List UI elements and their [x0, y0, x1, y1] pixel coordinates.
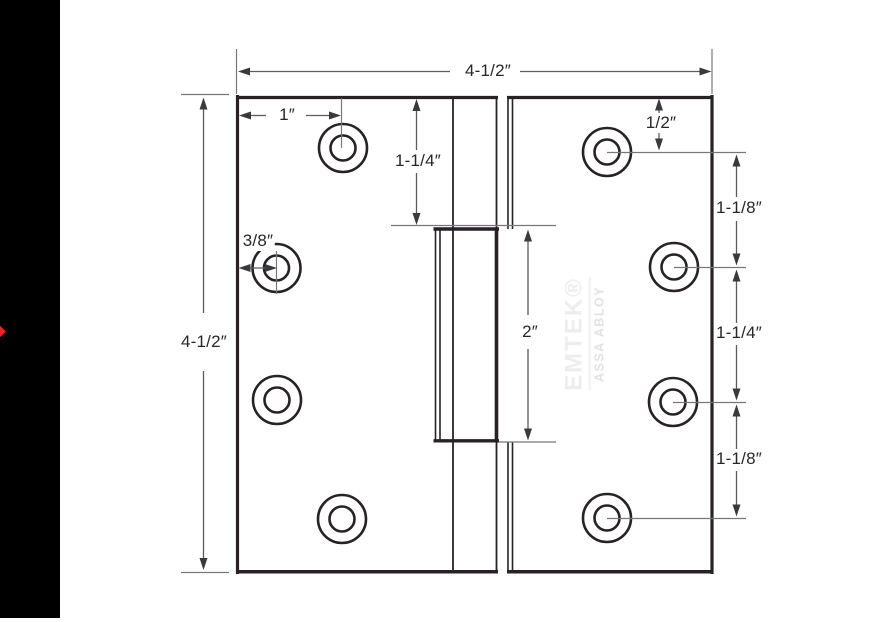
hole-outer-ring: [318, 495, 366, 543]
arrow-height-up: [200, 98, 208, 110]
arrow-height-down: [200, 558, 208, 570]
screw-holes: [253, 124, 699, 543]
dim-label-right-gap-1: 1-1/8″: [714, 198, 764, 218]
hole-inner-ring: [331, 136, 356, 161]
hole-outer-ring: [253, 376, 301, 424]
dim-label-barrel-length: 2″: [520, 322, 540, 342]
arrow-half-up: [655, 99, 663, 111]
dim-label-hole-offset-top: 1″: [277, 105, 297, 125]
arrow-gap3-up: [733, 405, 741, 417]
hole-inner-ring: [265, 388, 290, 413]
hole-outer-ring: [319, 124, 367, 172]
dim-label-right-gap-3: 1-1/8″: [714, 449, 764, 469]
dimension-lines: [204, 72, 737, 560]
arrow-38-right: [265, 264, 277, 272]
arrow-half-down: [655, 139, 663, 151]
hole-inner-ring: [330, 507, 355, 532]
arrow-gap1-up: [733, 155, 741, 167]
dim-label-overall-height: 4-1/2″: [179, 332, 229, 352]
hinge-barrel: [434, 96, 500, 571]
screw-hole-left-1: [319, 124, 367, 172]
arrow-gap1-down: [733, 254, 741, 266]
arrow-1in-right: [329, 112, 341, 120]
screw-hole-left-3: [253, 376, 301, 424]
screw-hole-left-4: [318, 495, 366, 543]
dim-label-right-top-to-hole: 1/2″: [644, 113, 678, 133]
dim-label-edge-to-hole: 3/8″: [241, 231, 275, 251]
arrow-114-down: [413, 213, 421, 225]
arrow-1in-left: [239, 112, 251, 120]
arrow-gap2-down: [733, 389, 741, 401]
arrow-width-right: [700, 68, 712, 76]
arrow-114-up: [413, 99, 421, 111]
arrow-2in-down: [524, 429, 532, 441]
dimension-arrowheads: [200, 68, 741, 571]
dim-label-plate-top-to-barrel: 1-1/4″: [393, 151, 443, 171]
left-leaf-outline: [236, 95, 498, 574]
arrow-2in-up: [524, 230, 532, 242]
arrow-gap2-up: [733, 270, 741, 282]
hinge-line-drawing: [0, 0, 888, 622]
hinge-diagram-canvas: EMTEK® ASSA ABLOY: [0, 0, 888, 622]
arrow-gap3-down: [733, 505, 741, 517]
arrow-38-left: [239, 264, 251, 272]
arrow-width-left: [238, 68, 250, 76]
dim-label-overall-width: 4-1/2″: [463, 61, 513, 81]
dim-label-right-gap-2: 1-1/4″: [714, 323, 764, 343]
